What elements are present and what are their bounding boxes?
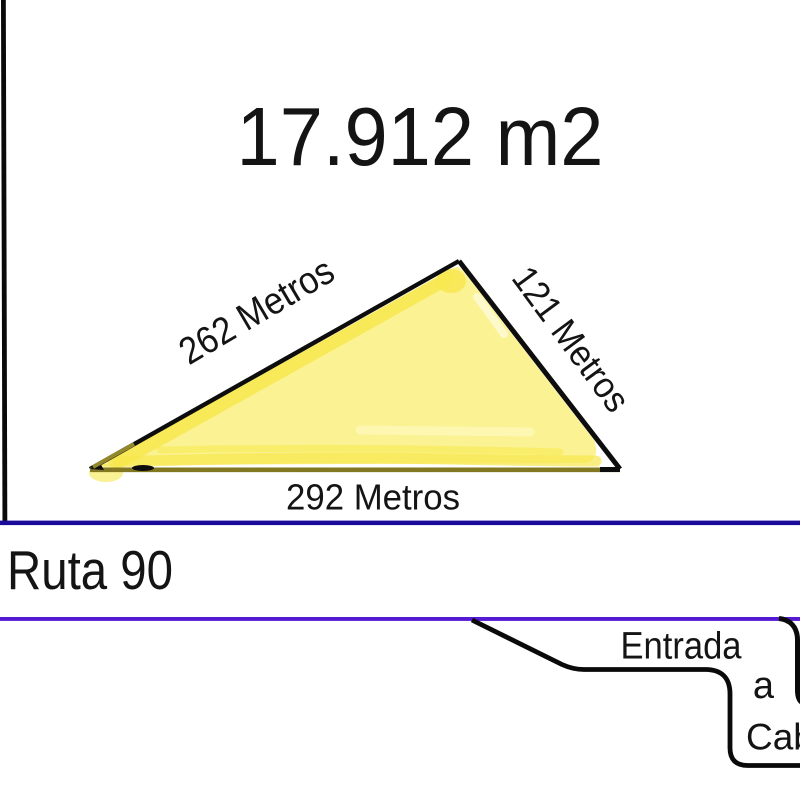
svg-text:a: a (753, 665, 775, 707)
svg-text:Entrada: Entrada (621, 626, 743, 668)
svg-text:Ruta 90: Ruta 90 (7, 539, 173, 601)
svg-text:Cabaña: Cabaña (746, 717, 800, 758)
svg-text:292 Metros: 292 Metros (286, 477, 460, 518)
svg-text:17.912 m2: 17.912 m2 (237, 90, 604, 183)
